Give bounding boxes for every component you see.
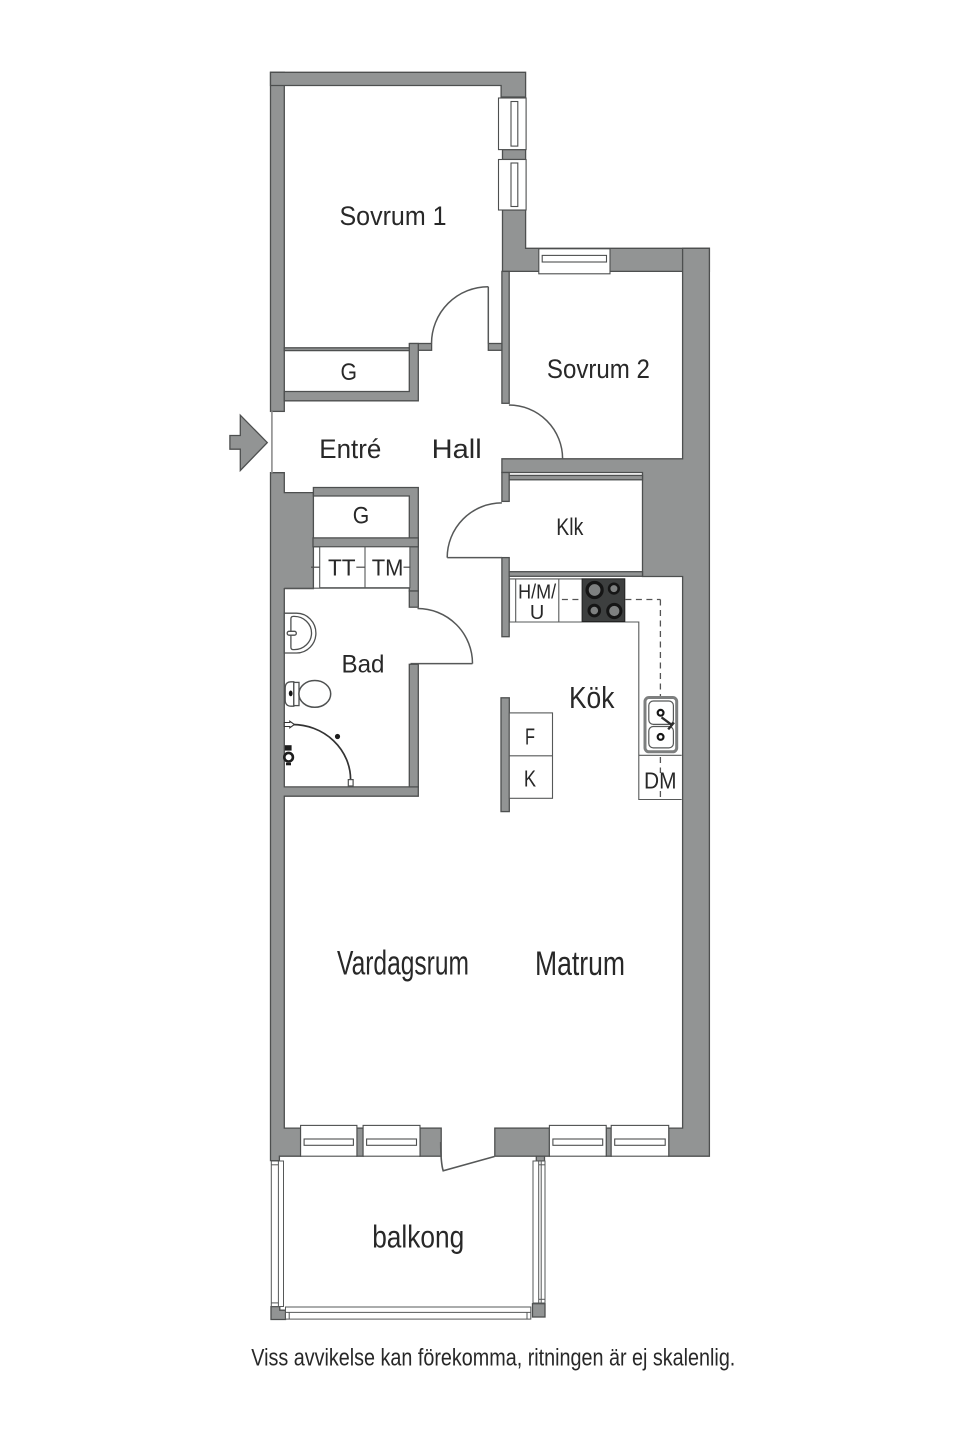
svg-text:Vardagsrum: Vardagsrum [337, 944, 469, 982]
svg-text:Hall: Hall [432, 434, 482, 464]
svg-text:F: F [525, 724, 535, 750]
svg-text:Sovrum 1: Sovrum 1 [340, 201, 447, 231]
svg-text:U: U [530, 602, 544, 624]
svg-text:balkong: balkong [372, 1219, 464, 1255]
svg-text:DM: DM [644, 768, 677, 794]
svg-text:Bad: Bad [342, 651, 385, 679]
svg-text:G: G [341, 359, 358, 386]
svg-text:Sovrum 2: Sovrum 2 [547, 354, 650, 384]
svg-text:Klk: Klk [556, 514, 584, 541]
svg-text:G: G [353, 503, 370, 530]
svg-text:Entré: Entré [319, 434, 381, 464]
svg-text:H/M/: H/M/ [518, 582, 556, 604]
svg-text:TT: TT [328, 555, 356, 581]
svg-text:TM: TM [372, 555, 404, 581]
svg-text:Viss avvikelse kan förekomma,: Viss avvikelse kan förekomma, ritningen … [251, 1344, 735, 1371]
svg-text:Kök: Kök [569, 680, 615, 715]
svg-text:K: K [524, 766, 536, 792]
svg-text:Matrum: Matrum [535, 945, 625, 983]
